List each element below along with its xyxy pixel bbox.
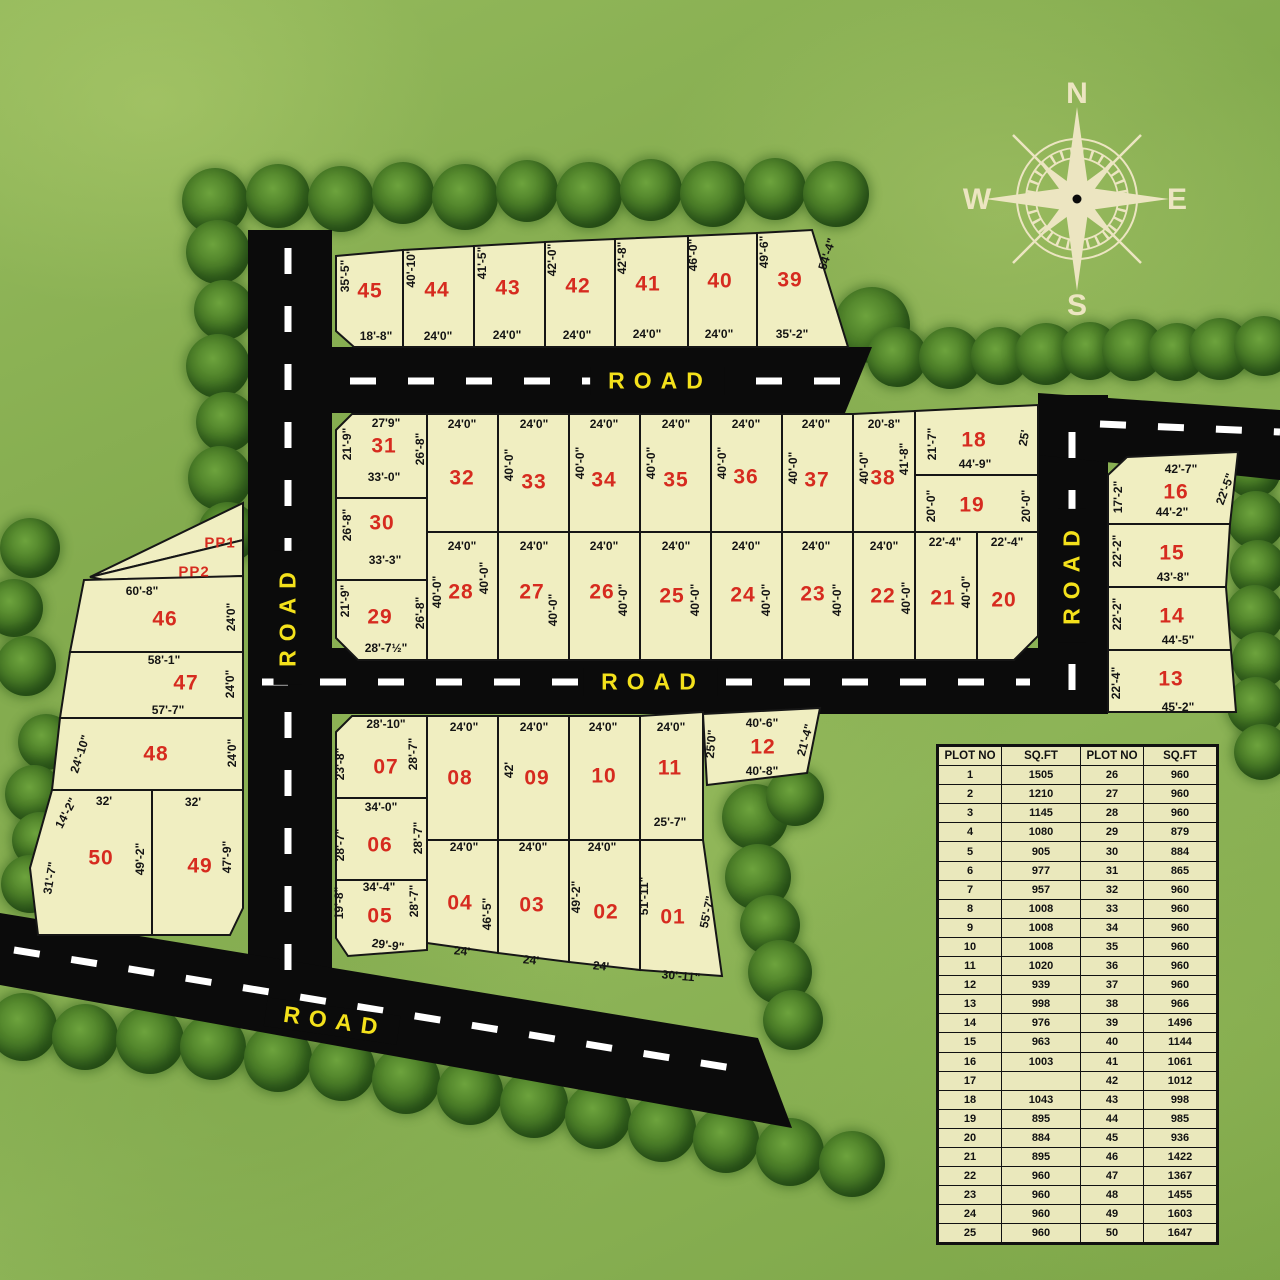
plot-dimension-label: 28'-7" xyxy=(408,885,420,918)
table-cell: 960 xyxy=(1144,804,1218,823)
plot-dimension-label: 46'-5" xyxy=(481,898,493,931)
plot-dimension-label: 24'0" xyxy=(520,721,549,733)
plot-dimension-label: 24'0" xyxy=(493,329,522,341)
table-row: 25960501647 xyxy=(938,1224,1218,1244)
plot-dimension-label: 21'-7" xyxy=(926,428,938,461)
plot-dimension-label: 44'-9" xyxy=(959,458,992,470)
table-cell: 905 xyxy=(1002,842,1081,861)
plot-44-number: 44 xyxy=(424,280,449,301)
plot-30-number: 30 xyxy=(369,513,394,534)
plot-dimension-label: 24'0" xyxy=(519,841,548,853)
plot-dimension-label: 24'0" xyxy=(590,418,619,430)
plot-dimension-label: 35'-2" xyxy=(776,328,809,340)
plot-dimension-label: 21'-9" xyxy=(341,428,353,461)
plot-dimension-label: 24'0" xyxy=(588,841,617,853)
plot-02-number: 02 xyxy=(593,902,618,923)
table-cell: 977 xyxy=(1002,861,1081,880)
table-cell: 31 xyxy=(1081,861,1144,880)
plot-33-number: 33 xyxy=(521,472,546,493)
table-row: 795732960 xyxy=(938,880,1218,899)
plot-dimension-label: 25'0" xyxy=(704,729,718,759)
plot-05-number: 05 xyxy=(367,906,392,927)
plot-dimension-label: 24'0" xyxy=(662,540,691,552)
plot-06-number: 06 xyxy=(367,835,392,856)
plot-dimension-label: 40'-0" xyxy=(787,452,799,485)
plot-27-number: 27 xyxy=(519,582,544,603)
table-cell: 1144 xyxy=(1144,1033,1218,1052)
table-cell: 25 xyxy=(938,1224,1002,1244)
table-cell: 27 xyxy=(1081,785,1144,804)
table-cell: 41 xyxy=(1081,1052,1144,1071)
plot-dimension-label: 49'-6" xyxy=(758,236,770,269)
table-cell: 884 xyxy=(1002,1128,1081,1147)
plot-dimension-label: 25'-7" xyxy=(654,816,687,828)
table-cell: 884 xyxy=(1144,842,1218,861)
table-cell: 15 xyxy=(938,1033,1002,1052)
plot-area-table: PLOT NOSQ.FTPLOT NOSQ.FT 115052696021210… xyxy=(936,744,1219,1245)
table-cell: 20 xyxy=(938,1128,1002,1147)
table-cell: 1061 xyxy=(1144,1052,1218,1071)
table-cell: 40 xyxy=(1081,1033,1144,1052)
plot-dimension-label: 22'-2" xyxy=(1111,535,1123,568)
plot-dimension-label: 40'-0" xyxy=(503,449,515,482)
table-cell: 1647 xyxy=(1144,1224,1218,1244)
compass-rose: N E S W xyxy=(963,77,1187,322)
plot-dimension-label: 24'0" xyxy=(424,330,453,342)
plot-04-number: 04 xyxy=(447,893,472,914)
plot-dimension-label: 24'0" xyxy=(802,540,831,552)
table-cell: 16 xyxy=(938,1052,1002,1071)
table-row: 1150526960 xyxy=(938,766,1218,785)
plot-dimension-label: 24'0" xyxy=(226,739,238,768)
table-cell: 21 xyxy=(938,1147,1002,1166)
table-cell: 1080 xyxy=(1002,823,1081,842)
table-cell: 960 xyxy=(1144,918,1218,937)
plot-dimension-label: 34'-4" xyxy=(363,881,396,893)
plot-pp2-number: PP2 xyxy=(178,565,209,580)
table-cell: 49 xyxy=(1081,1205,1144,1224)
plot-dimension-label: 24'0" xyxy=(225,603,237,632)
table-cell: 9 xyxy=(938,918,1002,937)
table-cell: 976 xyxy=(1002,1014,1081,1033)
table-row: 10100835960 xyxy=(938,937,1218,956)
plot-dimension-label: 49'-2" xyxy=(134,843,146,876)
table-cell: 1003 xyxy=(1002,1052,1081,1071)
table-row: 697731865 xyxy=(938,861,1218,880)
table-header-sqft: SQ.FT xyxy=(1002,746,1081,766)
plot-dimension-label: 46'-0" xyxy=(687,239,699,272)
table-cell: 1210 xyxy=(1002,785,1081,804)
table-cell: 1008 xyxy=(1002,937,1081,956)
plot-dimension-label: 42'-7" xyxy=(1165,463,1198,475)
plot-dimension-label: 41'-8" xyxy=(898,443,910,476)
plot-dimension-label: 40'-0" xyxy=(478,562,490,595)
compass-south-label: S xyxy=(1067,289,1087,322)
table-cell: 6 xyxy=(938,861,1002,880)
site-plan-map: N E S W ROADROADROADROADROADPP1PP2454443… xyxy=(0,0,1280,1280)
plot-21-number: 21 xyxy=(930,588,955,609)
plot-dimension-label: 26'-8" xyxy=(341,509,353,542)
plot-13-number: 13 xyxy=(1158,669,1183,690)
table-row: 22960471367 xyxy=(938,1167,1218,1186)
table-cell: 42 xyxy=(1081,1071,1144,1090)
plot-dimension-label: 33'-0" xyxy=(368,471,401,483)
compass-east-label: E xyxy=(1167,183,1187,216)
plot-47-number: 47 xyxy=(173,673,198,694)
plot-dimension-label: 24'0" xyxy=(520,540,549,552)
plot-19-number: 19 xyxy=(959,495,984,516)
plot-dimension-label: 20'-8" xyxy=(868,418,901,430)
table-cell: 35 xyxy=(1081,937,1144,956)
plot-dimension-label: 19'-8" xyxy=(333,887,345,920)
table-row: 11102036960 xyxy=(938,957,1218,976)
table-cell: 960 xyxy=(1002,1205,1081,1224)
road-label-right-vertical: ROAD xyxy=(1058,509,1087,643)
table-row: 23960481455 xyxy=(938,1186,1218,1205)
plot-dimension-label: 21'-9" xyxy=(339,585,351,618)
plot-dimension-label: 24'0" xyxy=(705,328,734,340)
table-cell: 45 xyxy=(1081,1128,1144,1147)
plot-dimension-label: 43'-8" xyxy=(1157,571,1190,583)
table-cell: 936 xyxy=(1144,1128,1218,1147)
plot-35-number: 35 xyxy=(663,470,688,491)
table-row: 4108029879 xyxy=(938,823,1218,842)
plot-dimension-label: 22'-2" xyxy=(1111,598,1123,631)
plot-dimension-label: 40'-0" xyxy=(858,452,870,485)
plot-37-number: 37 xyxy=(804,470,829,491)
plot-49-number: 49 xyxy=(187,856,212,877)
table-cell: 998 xyxy=(1002,995,1081,1014)
plot-dimension-label: 40'-0" xyxy=(960,576,972,609)
table-cell: 1367 xyxy=(1144,1167,1218,1186)
plot-11-number: 11 xyxy=(658,758,682,779)
table-cell: 966 xyxy=(1144,995,1218,1014)
plot-45-number: 45 xyxy=(357,281,382,302)
plot-dimension-label: 24'0" xyxy=(802,418,831,430)
table-cell: 960 xyxy=(1144,937,1218,956)
table-row: 1989544985 xyxy=(938,1109,1218,1128)
table-cell: 4 xyxy=(938,823,1002,842)
plot-dimension-label: 28'-7" xyxy=(412,822,424,855)
table-cell: 1422 xyxy=(1144,1147,1218,1166)
plot-dimension-label: 24'0" xyxy=(589,721,618,733)
plot-42-number: 42 xyxy=(565,276,590,297)
table-cell: 43 xyxy=(1081,1090,1144,1109)
table-cell: 1008 xyxy=(1002,899,1081,918)
table-cell: 963 xyxy=(1002,1033,1081,1052)
plot-dimension-label: 60'-8" xyxy=(126,585,159,597)
plot-25-number: 25 xyxy=(659,586,684,607)
table-cell: 1043 xyxy=(1002,1090,1081,1109)
plot-dimension-label: 23'-8" xyxy=(334,748,346,781)
table-cell: 960 xyxy=(1144,785,1218,804)
table-cell: 17 xyxy=(938,1071,1002,1090)
plot-dimension-label: 45'-2" xyxy=(1162,701,1195,713)
table-header-plotno: PLOT NO xyxy=(938,746,1002,766)
table-cell: 960 xyxy=(1144,880,1218,899)
table-cell: 1008 xyxy=(1002,918,1081,937)
plot-dimension-label: 40'-0" xyxy=(716,447,728,480)
table-cell: 37 xyxy=(1081,976,1144,995)
plot-dimension-label: 40'-0" xyxy=(831,584,843,617)
plot-dimension-label: 35'-5" xyxy=(339,260,351,293)
plot-26-number: 26 xyxy=(589,582,614,603)
table-cell: 1455 xyxy=(1144,1186,1218,1205)
plot-10-number: 10 xyxy=(591,766,616,787)
table-cell: 26 xyxy=(1081,766,1144,785)
table-row: 2088445936 xyxy=(938,1128,1218,1147)
plot-dimension-label: 42' xyxy=(503,762,515,778)
table-cell: 12 xyxy=(938,976,1002,995)
table-cell: 44 xyxy=(1081,1109,1144,1128)
plot-dimension-label: 32' xyxy=(96,795,112,807)
plot-43-number: 43 xyxy=(495,278,520,299)
plot-dimension-label: 40'-10" xyxy=(405,248,417,287)
table-cell: 32 xyxy=(1081,880,1144,899)
plot-dimension-label: 28'-10" xyxy=(366,718,405,730)
table-cell: 7 xyxy=(938,880,1002,899)
plot-dimension-label: 24'0" xyxy=(450,841,479,853)
plot-22-number: 22 xyxy=(870,586,895,607)
plot-dimension-label: 27'9" xyxy=(372,417,401,429)
plot-dimension-label: 20'-0" xyxy=(925,490,937,523)
table-cell: 3 xyxy=(938,804,1002,823)
table-cell: 960 xyxy=(1144,899,1218,918)
plot-39-number: 39 xyxy=(777,270,802,291)
table-cell: 2 xyxy=(938,785,1002,804)
table-cell: 1012 xyxy=(1144,1071,1218,1090)
plot-dimension-label: 30'-11" xyxy=(661,968,700,983)
plot-dimension-label: 28'-7½" xyxy=(365,642,408,654)
compass-west-label: W xyxy=(963,183,992,216)
table-row: 3114528960 xyxy=(938,804,1218,823)
plot-dimension-label: 24'0" xyxy=(450,721,479,733)
table-cell: 939 xyxy=(1002,976,1081,995)
road-label-left-vertical: ROAD xyxy=(274,551,303,685)
plot-dimension-label: 24'0" xyxy=(563,329,592,341)
table-row: 17421012 xyxy=(938,1071,1218,1090)
plot-pp1-number: PP1 xyxy=(204,536,235,551)
table-row: 1399838966 xyxy=(938,995,1218,1014)
table-cell: 18 xyxy=(938,1090,1002,1109)
table-cell: 865 xyxy=(1144,861,1218,880)
plot-dimension-label: 40'-0" xyxy=(617,584,629,617)
plot-dimension-label: 32' xyxy=(185,796,201,808)
table-cell: 24 xyxy=(938,1205,1002,1224)
plot-16-number: 16 xyxy=(1163,482,1188,503)
table-row: 8100833960 xyxy=(938,899,1218,918)
table-cell: 38 xyxy=(1081,995,1144,1014)
plot-23-number: 23 xyxy=(800,584,825,605)
table-cell: 5 xyxy=(938,842,1002,861)
plot-dimension-label: 42'-8" xyxy=(616,242,628,275)
table-row: 15963401144 xyxy=(938,1033,1218,1052)
plot-dimension-label: 24'0" xyxy=(633,328,662,340)
table-cell: 960 xyxy=(1144,957,1218,976)
table-cell: 30 xyxy=(1081,842,1144,861)
table-cell: 1 xyxy=(938,766,1002,785)
plot-08-number: 08 xyxy=(447,768,472,789)
table-cell: 33 xyxy=(1081,899,1144,918)
table-cell: 22 xyxy=(938,1167,1002,1186)
road-label-middle: ROAD xyxy=(583,668,717,697)
table-cell: 36 xyxy=(1081,957,1144,976)
plot-dimension-label: 41'-5" xyxy=(476,247,488,280)
table-cell: 39 xyxy=(1081,1014,1144,1033)
table-header-plotno: PLOT NO xyxy=(1081,746,1144,766)
plot-dimension-label: 40'-0" xyxy=(574,447,586,480)
plot-15-number: 15 xyxy=(1159,543,1184,564)
plot-03-number: 03 xyxy=(519,895,544,916)
plot-dimension-label: 17'-2" xyxy=(1112,481,1124,514)
plot-28-number: 28 xyxy=(448,582,473,603)
plot-dimension-label: 24' xyxy=(522,953,539,966)
table-cell: 957 xyxy=(1002,880,1081,899)
plot-dimension-label: 24'0" xyxy=(224,670,236,699)
plot-dimension-label: 49'-2" xyxy=(570,881,582,914)
table-cell: 960 xyxy=(1002,1186,1081,1205)
table-row: 24960491603 xyxy=(938,1205,1218,1224)
table-cell: 895 xyxy=(1002,1147,1081,1166)
road-label-top: ROAD xyxy=(590,367,724,396)
plot-dimension-label: 24' xyxy=(592,959,609,972)
plot-dimension-label: 40'-0" xyxy=(645,447,657,480)
table-cell: 13 xyxy=(938,995,1002,1014)
plot-01-number: 01 xyxy=(660,907,685,928)
table-header-sqft: SQ.FT xyxy=(1144,746,1218,766)
plot-dimension-label: 24'0" xyxy=(732,418,761,430)
plot-dimension-label: 40'-0" xyxy=(431,576,443,609)
plot-24-number: 24 xyxy=(730,585,755,606)
plot-31-number: 31 xyxy=(371,436,396,457)
table-cell: 34 xyxy=(1081,918,1144,937)
table-cell: 1145 xyxy=(1002,804,1081,823)
plot-dimension-label: 40'-0" xyxy=(689,584,701,617)
table-row: 1293937960 xyxy=(938,976,1218,995)
plot-dimension-label: 26'-8" xyxy=(414,433,426,466)
plot-dimension-label: 24'0" xyxy=(448,540,477,552)
plot-dimension-label: 44'-5" xyxy=(1162,634,1195,646)
plot-34-number: 34 xyxy=(591,470,616,491)
plot-dimension-label: 58'-1" xyxy=(148,654,181,666)
table-cell: 14 xyxy=(938,1014,1002,1033)
plot-dimension-label: 24'0" xyxy=(448,418,477,430)
plot-41-number: 41 xyxy=(635,274,660,295)
table-row: 161003411061 xyxy=(938,1052,1218,1071)
plot-38-number: 38 xyxy=(870,468,895,489)
table-cell: 19 xyxy=(938,1109,1002,1128)
plot-dimension-label: 24'0" xyxy=(870,540,899,552)
plot-dimension-label: 22'-4" xyxy=(991,536,1024,548)
plot-dimension-label: 24'0" xyxy=(590,540,619,552)
table-cell: 1020 xyxy=(1002,957,1081,976)
plot-dimension-label: 40'-0" xyxy=(547,594,559,627)
table-cell: 960 xyxy=(1144,976,1218,995)
plot-dimension-label: 44'-2" xyxy=(1156,506,1189,518)
plot-29-number: 29 xyxy=(367,607,392,628)
table-cell: 10 xyxy=(938,937,1002,956)
plot-dimension-label: 40'-6" xyxy=(746,717,779,729)
table-row: 14976391496 xyxy=(938,1014,1218,1033)
plot-14-number: 14 xyxy=(1159,606,1184,627)
plot-dimension-label: 51'-11" xyxy=(638,877,650,916)
plot-dimension-label: 18'-8" xyxy=(360,330,393,342)
table-cell: 8 xyxy=(938,899,1002,918)
table-cell: 960 xyxy=(1002,1224,1081,1244)
plot-dimension-label: 34'-0" xyxy=(365,801,398,813)
plot-40-number: 40 xyxy=(707,271,732,292)
table-cell: 48 xyxy=(1081,1186,1144,1205)
plot-dimension-label: 22'-4" xyxy=(1110,667,1122,700)
plot-dimension-label: 26'-8" xyxy=(414,597,426,630)
table-row: 2121027960 xyxy=(938,785,1218,804)
plot-dimension-label: 33'-3" xyxy=(369,554,402,566)
table-cell: 50 xyxy=(1081,1224,1144,1244)
plot-dimension-label: 28'-7" xyxy=(407,738,419,771)
table-cell: 1603 xyxy=(1144,1205,1218,1224)
table-cell: 28 xyxy=(1081,804,1144,823)
plot-07-number: 07 xyxy=(373,757,398,778)
table-cell: 895 xyxy=(1002,1109,1081,1128)
table-cell: 998 xyxy=(1144,1090,1218,1109)
plot-dimension-label: 40'-0" xyxy=(760,584,772,617)
plot-dimension-label: 20'-0" xyxy=(1020,490,1032,523)
plot-50-number: 50 xyxy=(88,848,113,869)
plot-12-number: 12 xyxy=(750,737,775,758)
table-row: 18104343998 xyxy=(938,1090,1218,1109)
compass-north-label: N xyxy=(1066,77,1088,110)
plot-dimension-label: 24'0" xyxy=(520,418,549,430)
plot-dimension-label: 40'-8" xyxy=(746,765,779,777)
table-cell: 1496 xyxy=(1144,1014,1218,1033)
table-cell: 23 xyxy=(938,1186,1002,1205)
plot-dimension-label: 24'0" xyxy=(662,418,691,430)
table-cell: 1505 xyxy=(1002,766,1081,785)
plot-dimension-label: 24'0" xyxy=(657,721,686,733)
table-cell: 985 xyxy=(1144,1109,1218,1128)
plot-dimension-label: 57'-7" xyxy=(152,704,185,716)
table-cell xyxy=(1002,1071,1081,1090)
plot-20-number: 20 xyxy=(991,590,1016,611)
table-row: 590530884 xyxy=(938,842,1218,861)
table-cell: 47 xyxy=(1081,1167,1144,1186)
plot-dimension-label: 40'-0" xyxy=(900,582,912,615)
plot-48-number: 48 xyxy=(143,744,168,765)
plot-46-number: 46 xyxy=(152,609,177,630)
table-cell: 11 xyxy=(938,957,1002,976)
plot-dimension-label: 25' xyxy=(1017,429,1032,447)
table-row: 9100834960 xyxy=(938,918,1218,937)
plot-dimension-label: 22'-4" xyxy=(929,536,962,548)
plot-dimension-label: 47'-9" xyxy=(221,841,233,874)
table-row: 21895461422 xyxy=(938,1147,1218,1166)
table-cell: 960 xyxy=(1002,1167,1081,1186)
plot-36-number: 36 xyxy=(733,467,758,488)
table-cell: 879 xyxy=(1144,823,1218,842)
table-cell: 960 xyxy=(1144,766,1218,785)
plot-dimension-label: 42'-0" xyxy=(546,244,558,277)
plot-dimension-label: 24' xyxy=(453,944,470,957)
plot-18-number: 18 xyxy=(961,430,986,451)
plot-32-number: 32 xyxy=(449,468,474,489)
plot-dimension-label: 28'-7" xyxy=(334,829,346,862)
table-cell: 29 xyxy=(1081,823,1144,842)
table-cell: 46 xyxy=(1081,1147,1144,1166)
plot-09-number: 09 xyxy=(524,768,549,789)
plot-dimension-label: 24'0" xyxy=(732,540,761,552)
